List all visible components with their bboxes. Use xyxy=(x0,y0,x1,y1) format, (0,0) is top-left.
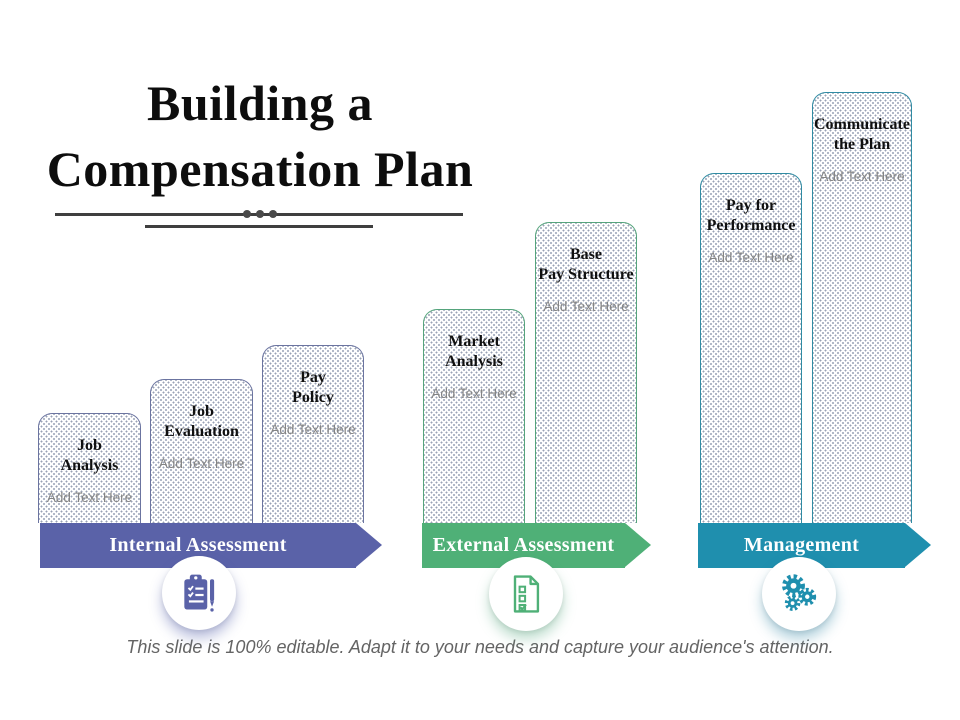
column-placeholder-text: Add Text Here xyxy=(536,299,636,314)
editable-note-caption: This slide is 100% editable. Adapt it to… xyxy=(0,637,960,658)
divider-dot xyxy=(256,210,264,218)
divider-dots-ornament xyxy=(243,210,277,218)
column-placeholder-text: Add Text Here xyxy=(424,386,524,401)
slide-title-line2: Compensation Plan xyxy=(28,136,492,202)
column-placeholder-text: Add Text Here xyxy=(263,422,363,437)
survey-form-icon xyxy=(504,572,548,616)
column-card-market-analysis: Market Analysis Add Text Here xyxy=(423,309,525,523)
column-title: Communicate the Plan xyxy=(813,115,911,155)
clipboard-checklist-icon xyxy=(177,571,221,615)
column-placeholder-text: Add Text Here xyxy=(151,456,252,471)
divider-dot xyxy=(269,210,277,218)
column-card-job-analysis: Job Analysis Add Text Here xyxy=(38,413,141,523)
column-card-pay-policy: Pay Policy Add Text Here xyxy=(262,345,364,523)
slide-title: Building a Compensation Plan xyxy=(28,70,492,202)
slide-canvas: Building a Compensation Plan Job Analysi… xyxy=(0,0,960,720)
column-title: Pay for Performance xyxy=(701,196,801,236)
column-card-base-pay-structure: Base Pay Structure Add Text Here xyxy=(535,222,637,523)
title-divider-underline xyxy=(145,225,373,228)
banner-label: Management xyxy=(744,534,859,557)
column-placeholder-text: Add Text Here xyxy=(39,490,140,505)
column-title: Pay Policy xyxy=(263,368,363,408)
banner-label: Internal Assessment xyxy=(109,534,286,557)
column-title: Job Evaluation xyxy=(151,402,252,442)
column-title: Market Analysis xyxy=(424,332,524,372)
gears-icon xyxy=(777,572,821,616)
column-title: Job Analysis xyxy=(39,436,140,476)
banner-label: External Assessment xyxy=(433,534,615,557)
divider-dot xyxy=(243,210,251,218)
column-card-pay-for-performance: Pay for Performance Add Text Here xyxy=(700,173,802,523)
column-card-job-evaluation: Job Evaluation Add Text Here xyxy=(150,379,253,523)
column-placeholder-text: Add Text Here xyxy=(701,250,801,265)
slide-title-line1: Building a xyxy=(28,70,492,136)
column-card-communicate-the-plan: Communicate the Plan Add Text Here xyxy=(812,92,912,523)
icon-badge-internal-assessment xyxy=(162,556,236,630)
column-placeholder-text: Add Text Here xyxy=(813,169,911,184)
icon-badge-external-assessment xyxy=(489,557,563,631)
icon-badge-management xyxy=(762,557,836,631)
column-title: Base Pay Structure xyxy=(536,245,636,285)
